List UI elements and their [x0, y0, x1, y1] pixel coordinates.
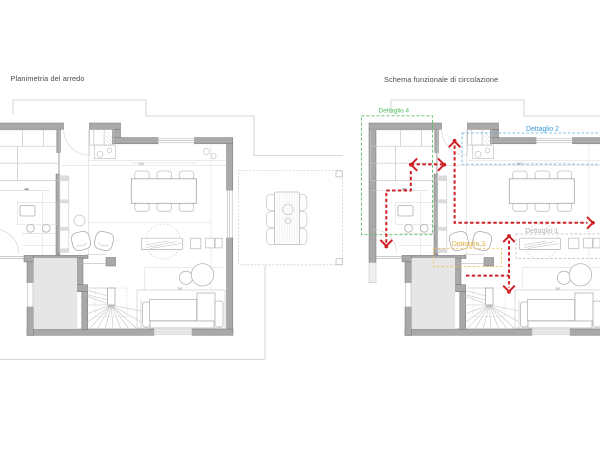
svg-text:Dettaglio 2: Dettaglio 2	[526, 126, 559, 133]
svg-text:Dettaglio 3: Dettaglio 3	[452, 241, 486, 248]
svg-text:Planimetria del arredo: Planimetria del arredo	[11, 74, 85, 83]
svg-text:Schema funzionale di circolazi: Schema funzionale di circolazione	[384, 75, 498, 84]
svg-text:Dettaglio 1: Dettaglio 1	[525, 228, 558, 235]
svg-text:Dettaglio 4: Dettaglio 4	[379, 107, 410, 114]
